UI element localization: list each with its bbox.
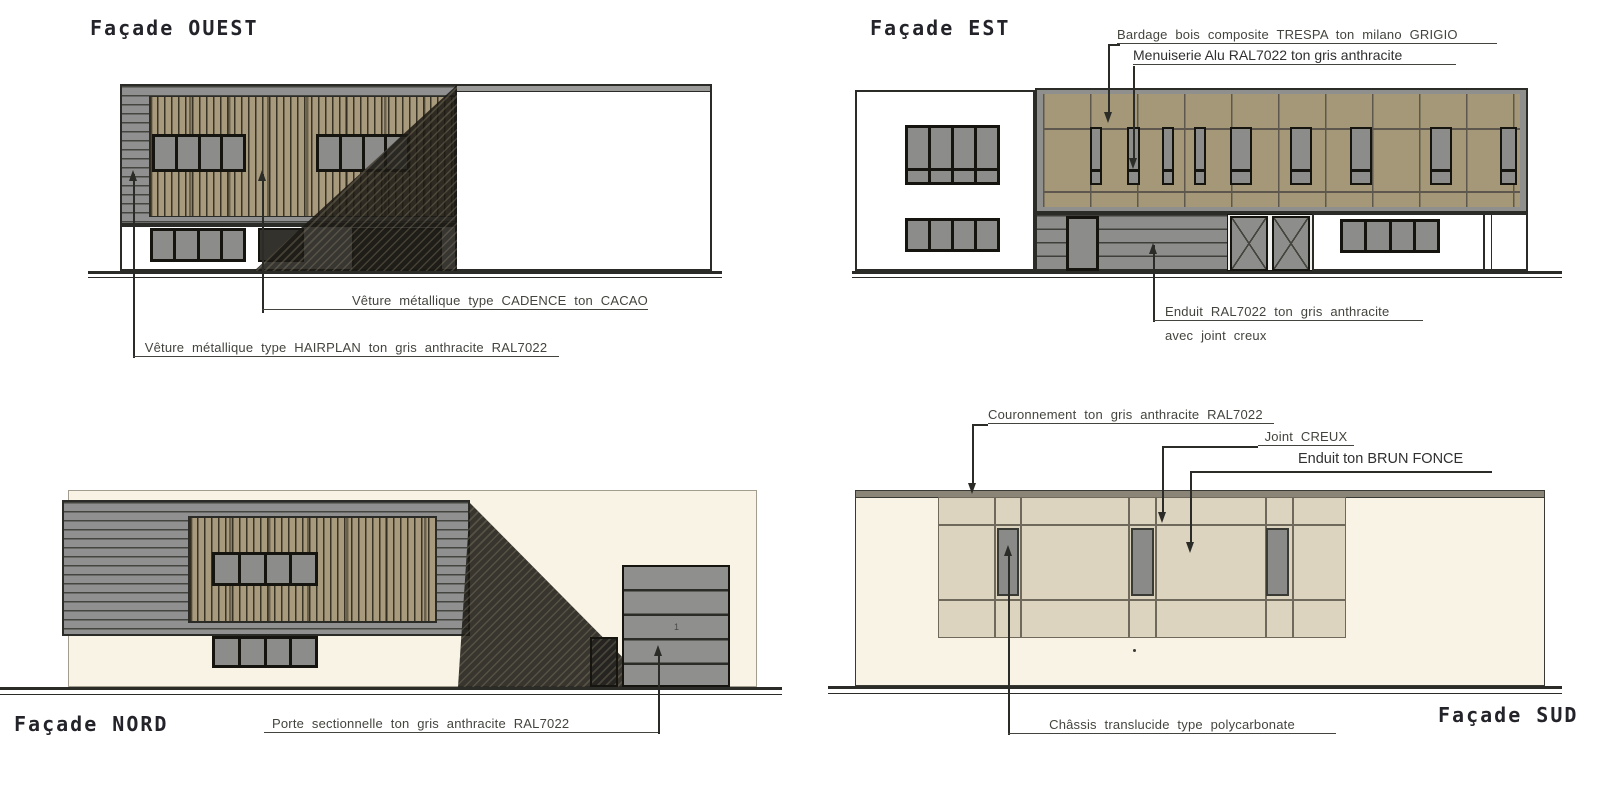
- est-slit-window: [1162, 127, 1174, 185]
- ouest-hairplan-leader-line: [133, 174, 135, 358]
- window-column: [954, 128, 974, 182]
- est-service-door: [1066, 216, 1099, 271]
- sud-dot-mark: [1133, 649, 1136, 652]
- window-pane: [292, 555, 315, 583]
- window-column: [908, 128, 928, 182]
- ouest-ground-line-thin: [88, 277, 722, 278]
- ouest-ground-line: [88, 271, 722, 274]
- nord-porte-arrow-icon: [654, 645, 662, 656]
- sud-enduit-arrow-icon: [1186, 542, 1194, 553]
- sud-vertical-joint: [1128, 497, 1130, 638]
- est-enduit-arrow-icon: [1149, 243, 1157, 254]
- est-bardage-leader-line: [1108, 44, 1110, 112]
- window-pane: [215, 639, 238, 665]
- ouest-hairplan-label: Vêture métallique type HAIRPLAN ton gris…: [133, 340, 559, 357]
- sud-couronnement-arrow-icon: [968, 483, 976, 494]
- trespa-joint: [1043, 191, 1520, 193]
- ouest-white-volume: [455, 84, 712, 271]
- est-menuiserie-label: Menuiserie Alu RAL7022 ton gris anthraci…: [1133, 47, 1456, 65]
- window-pane: [241, 555, 264, 583]
- window-column: [931, 128, 951, 182]
- est-band-window: [1230, 127, 1252, 185]
- est-band-window: [1500, 127, 1517, 185]
- nord-ground-line-thin: [0, 694, 782, 695]
- sud-enduit-leader-line: [1190, 471, 1192, 542]
- window-pane: [954, 128, 974, 168]
- est-bardage-label: Bardage bois composite TRESPA ton milano…: [1117, 27, 1497, 44]
- window-pane: [931, 171, 951, 182]
- window-pane: [215, 555, 238, 583]
- nord-dark-doorway: [590, 637, 618, 687]
- window-pane: [178, 137, 198, 169]
- window-pane: [267, 555, 290, 583]
- sud-ground-line: [828, 686, 1562, 689]
- sud-couronnement-leader-line: [972, 424, 988, 426]
- window-pane: [908, 171, 928, 182]
- window-pane: [908, 128, 928, 168]
- est-lower-window-left: [905, 218, 1000, 252]
- window-pane: [1367, 222, 1388, 250]
- window-pane: [1416, 222, 1437, 250]
- sud-ground-line-thin: [828, 693, 1562, 694]
- window-pane: [977, 128, 997, 168]
- ouest-upper-window-left: [152, 134, 246, 172]
- sud-joint-label: Joint CREUX: [1258, 429, 1354, 446]
- sud-chassis-arrow-icon: [1004, 545, 1012, 556]
- window-pane: [908, 221, 928, 249]
- window-pane: [241, 639, 264, 665]
- sud-vertical-joint: [1020, 497, 1022, 638]
- facade-est-title: Façade EST: [870, 16, 1010, 40]
- sud-joint-leader-line: [1162, 446, 1164, 512]
- sud-enduit-label: Enduit ton BRUN FONCE: [1298, 451, 1463, 467]
- nord-porte-label: Porte sectionnelle ton gris anthracite R…: [264, 716, 658, 733]
- est-menuiserie-arrow-icon: [1129, 158, 1137, 169]
- est-ground-line: [852, 271, 1562, 274]
- est-band-window: [1290, 127, 1312, 185]
- sud-joint-arrow-icon: [1158, 512, 1166, 523]
- sud-polycarbonate-window: [1266, 528, 1289, 596]
- window-pane: [223, 231, 243, 259]
- sud-couronnement-label: Couronnement ton gris anthracite RAL7022: [988, 407, 1274, 424]
- sud-enduit-leader-line: [1190, 471, 1492, 473]
- sud-chassis-label: Châssis translucide type polycarbonate: [1008, 717, 1336, 734]
- window-pane: [1343, 222, 1364, 250]
- window-pane: [954, 171, 974, 182]
- est-bardage-arrow-icon: [1104, 112, 1112, 123]
- est-enduit-label: Enduit RAL7022 ton gris anthracite: [1153, 304, 1423, 321]
- sud-polycarbonate-window: [1131, 528, 1154, 596]
- est-enduit-label-line2: avec joint creux: [1165, 328, 1267, 343]
- ouest-cadence-arrow-icon: [258, 170, 266, 181]
- window-column: [977, 128, 997, 182]
- window-pane: [977, 171, 997, 182]
- sud-vertical-joint: [1292, 497, 1294, 638]
- ouest-lower-window: [150, 228, 246, 262]
- elevation-drawing-sheet: Façade OUEST Vêture métallique type CADE…: [0, 0, 1600, 793]
- est-upper-window: [905, 125, 1000, 185]
- nord-porte-leader-line: [658, 650, 660, 734]
- sud-vertical-joint: [1155, 497, 1157, 638]
- window-pane: [931, 221, 951, 249]
- wall-edge-line: [1483, 215, 1485, 269]
- window-pane: [200, 231, 220, 259]
- est-lower-window-right: [1340, 219, 1440, 253]
- window-pane: [931, 128, 951, 168]
- window-pane: [954, 221, 974, 249]
- est-double-door-leaf: [1272, 216, 1310, 271]
- facade-ouest-title: Façade OUEST: [90, 16, 259, 40]
- window-pane: [267, 639, 290, 665]
- sud-chassis-leader-line: [1008, 550, 1010, 735]
- wall-edge-line: [1491, 215, 1492, 269]
- est-double-door-leaf: [1230, 216, 1268, 271]
- est-slit-window: [1194, 127, 1206, 185]
- window-pane: [319, 137, 339, 169]
- window-pane: [1392, 222, 1413, 250]
- nord-lower-window: [212, 636, 318, 668]
- est-menuiserie-leader-line: [1133, 66, 1135, 158]
- sud-vertical-joint: [994, 497, 996, 638]
- sud-joint-leader-line: [1162, 446, 1258, 448]
- facade-sud-title: Façade SUD: [1438, 703, 1578, 727]
- sud-horizontal-joint: [939, 599, 1345, 601]
- window-pane: [977, 221, 997, 249]
- ouest-hairplan-arrow-icon: [129, 170, 137, 181]
- sud-couronnement-leader-line: [972, 424, 974, 483]
- ouest-cadence-label: Vêture métallique type CADENCE ton CACAO: [262, 293, 648, 310]
- window-pane: [153, 231, 173, 259]
- ouest-white-volume-coping: [457, 86, 710, 92]
- window-pane: [342, 137, 362, 169]
- nord-door-mark: 1: [674, 622, 679, 632]
- nord-ground-line: [0, 687, 782, 690]
- nord-upper-window: [212, 552, 318, 586]
- window-pane: [223, 137, 243, 169]
- facade-nord-title: Façade NORD: [14, 712, 168, 736]
- window-pane: [176, 231, 196, 259]
- est-slit-window: [1090, 127, 1102, 185]
- est-bardage-leader-line: [1108, 44, 1120, 46]
- est-ground-line-thin: [852, 277, 1562, 278]
- est-band-window: [1350, 127, 1372, 185]
- window-pane: [155, 137, 175, 169]
- est-band-window: [1430, 127, 1452, 185]
- window-pane: [201, 137, 221, 169]
- sud-horizontal-joint: [939, 524, 1345, 526]
- window-pane: [292, 639, 315, 665]
